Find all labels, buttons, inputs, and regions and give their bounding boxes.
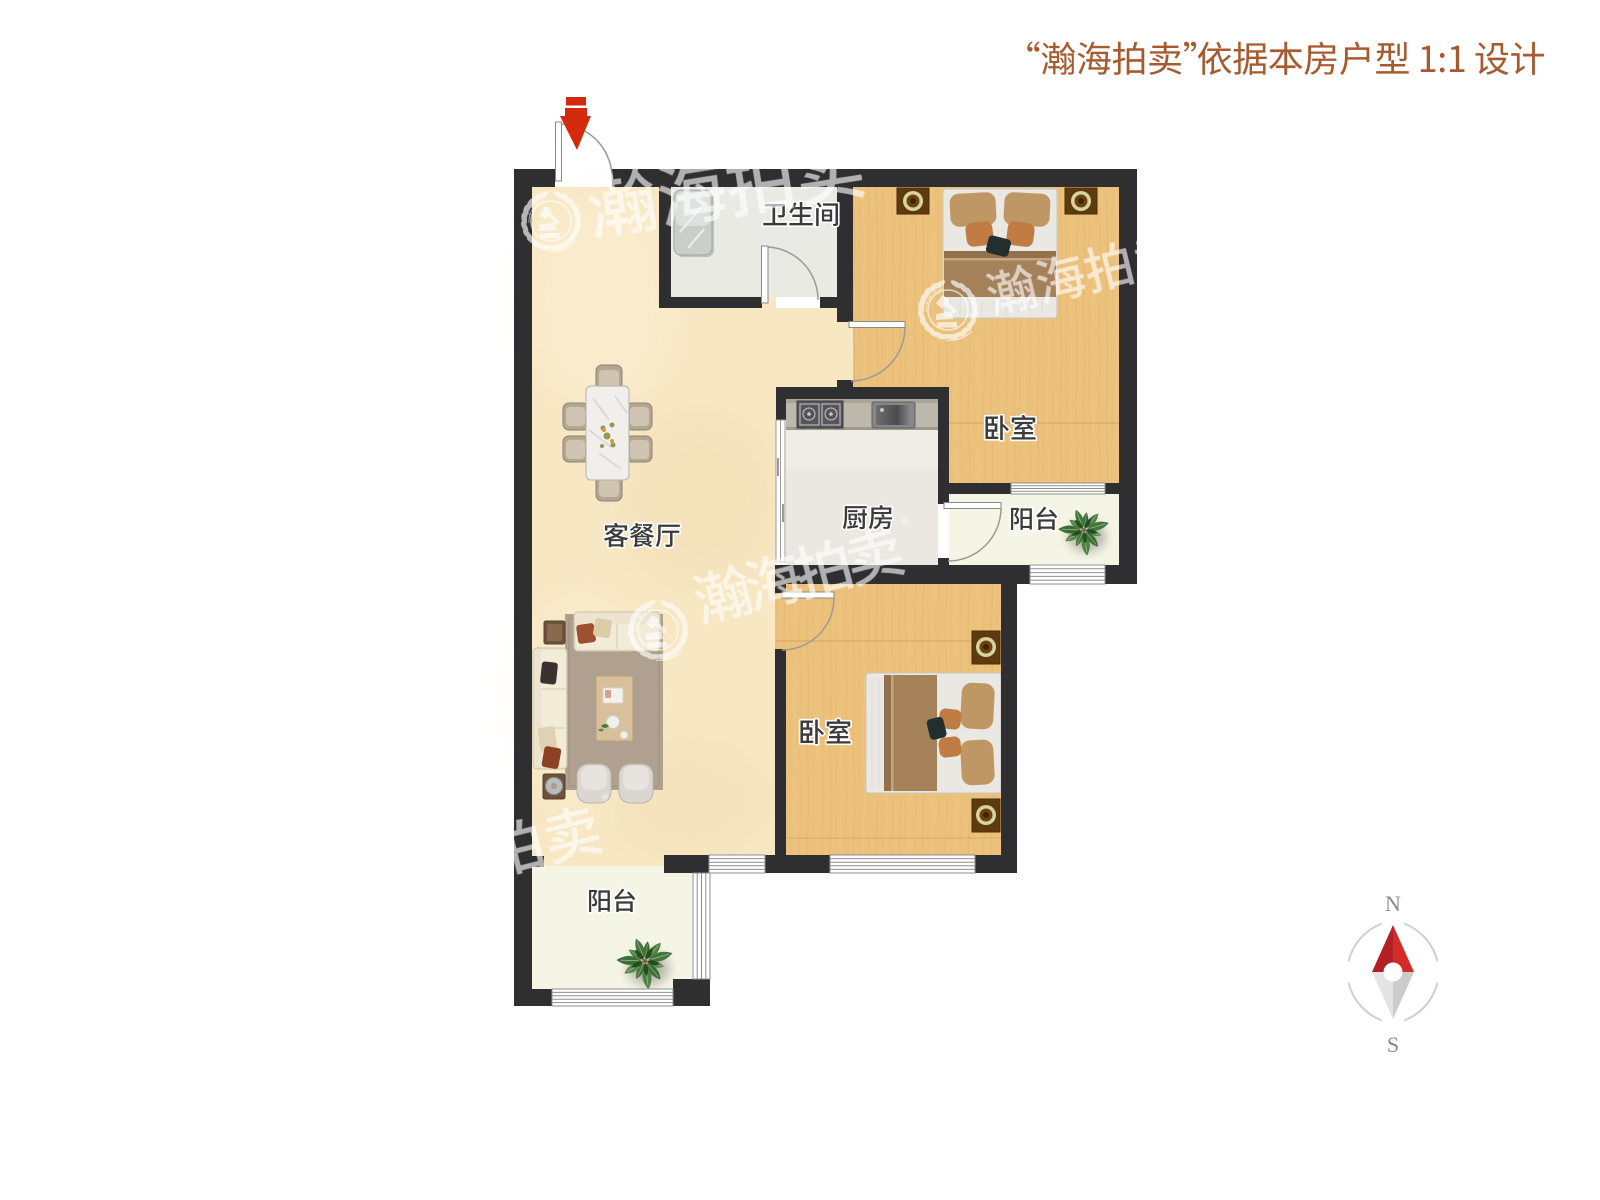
svg-text:N: N	[1385, 891, 1401, 916]
svg-text:S: S	[1387, 1032, 1399, 1057]
